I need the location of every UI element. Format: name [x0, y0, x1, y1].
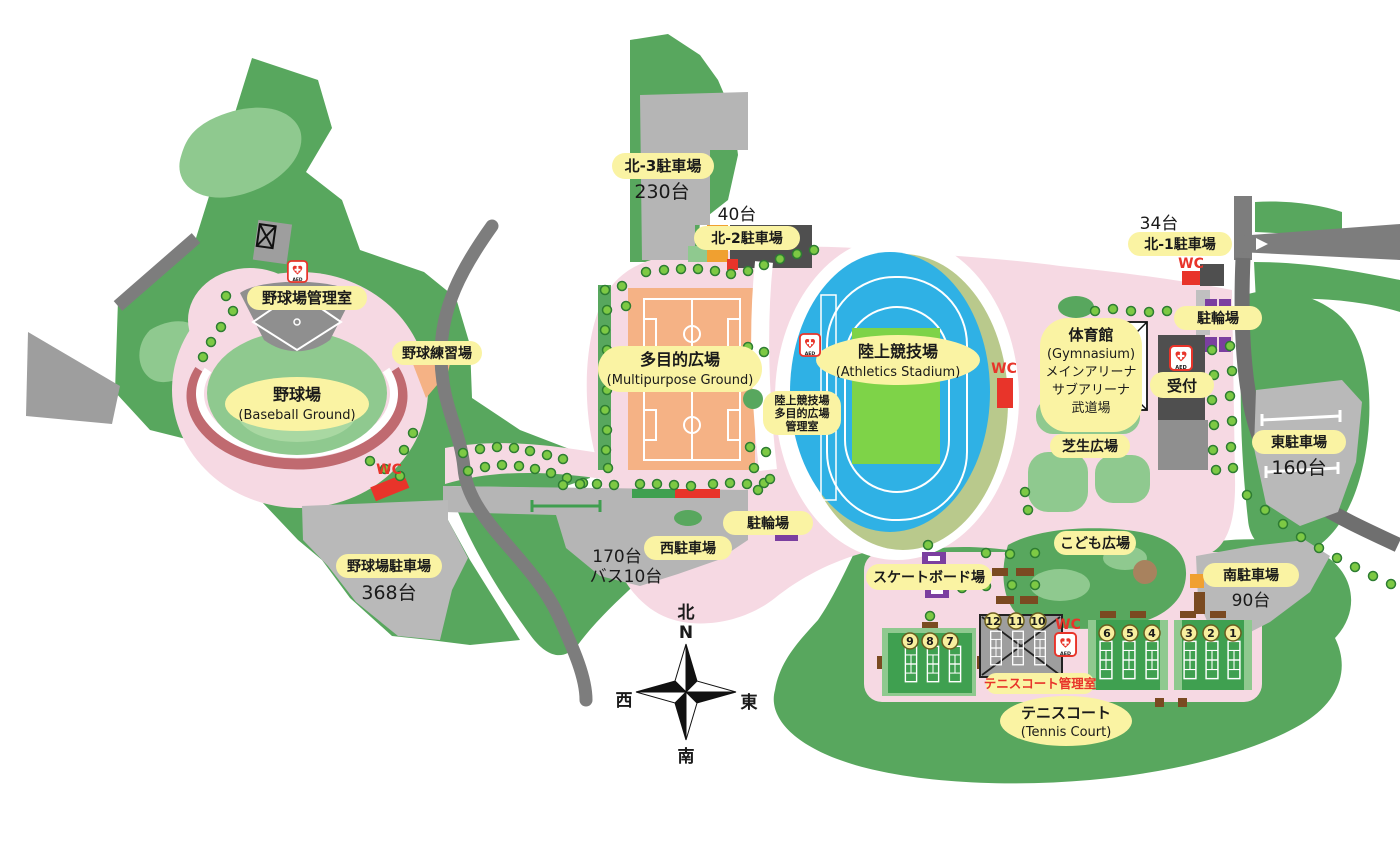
aed-icon [1170, 346, 1192, 371]
svg-text:(Multipurpose Ground): (Multipurpose Ground) [607, 373, 754, 388]
svg-text:北: 北 [678, 603, 695, 623]
svg-text:体育館: 体育館 [1068, 326, 1113, 344]
svg-text:1: 1 [1229, 627, 1237, 640]
label-bicycle-parking-center: 駐輪場 [723, 511, 813, 535]
svg-text:多目的広場: 多目的広場 [640, 350, 720, 369]
svg-text:西: 西 [616, 691, 633, 711]
svg-text:北-2駐車場: 北-2駐車場 [711, 230, 783, 247]
svg-text:駐輪場: 駐輪場 [747, 515, 789, 532]
wc-building-stadium [997, 378, 1013, 408]
label-bicycle-parking-east: 駐輪場 [1174, 306, 1262, 330]
svg-text:野球場: 野球場 [273, 385, 321, 404]
svg-text:バス10台: バス10台 [590, 567, 663, 587]
label-kids-plaza: こども広場 [1054, 531, 1136, 555]
svg-text:8: 8 [926, 635, 934, 648]
svg-text:野球場管理室: 野球場管理室 [262, 289, 352, 307]
label-skateboard: スケートボード場 [866, 564, 992, 590]
svg-text:北-1駐車場: 北-1駐車場 [1144, 236, 1216, 253]
svg-text:東駐車場: 東駐車場 [1271, 434, 1327, 451]
wc-label-baseball: WC [376, 462, 402, 478]
svg-text:スケートボード場: スケートボード場 [873, 569, 985, 586]
svg-text:160台: 160台 [1271, 457, 1326, 479]
svg-text:南駐車場: 南駐車場 [1223, 567, 1279, 584]
sandpit [1133, 560, 1157, 584]
svg-text:駐輪場: 駐輪場 [1197, 310, 1239, 327]
svg-text:4: 4 [1148, 627, 1156, 640]
svg-text:7: 7 [946, 635, 954, 648]
svg-text:多目的広場: 多目的広場 [775, 406, 830, 420]
wc-label-north1: WC [1178, 256, 1204, 272]
label-baseball-office: 野球場管理室 [247, 286, 367, 310]
aed-icon [800, 334, 820, 357]
label-gymnasium: 体育館 (Gymnasium) メインアリーナ サブアリーナ 武道場 [1040, 318, 1142, 432]
label-multipurpose-ground: 多目的広場 (Multipurpose Ground) [598, 346, 762, 392]
label-field-office: 陸上競技場 多目的広場 管理室 [763, 391, 841, 435]
svg-text:メインアリーナ: メインアリーナ [1045, 365, 1136, 380]
svg-text:(Tennis Court): (Tennis Court) [1021, 725, 1112, 740]
svg-text:南: 南 [678, 746, 695, 767]
label-baseball-ground: 野球場 (Baseball Ground) [225, 377, 369, 431]
svg-text:170台: 170台 [592, 547, 641, 567]
aed-icon [1055, 633, 1076, 657]
svg-text:テニスコート: テニスコート [1021, 704, 1111, 722]
label-tennis-court: テニスコート (Tennis Court) [1000, 696, 1132, 746]
svg-text:西駐車場: 西駐車場 [660, 540, 716, 557]
svg-text:N: N [679, 623, 693, 643]
label-reception: 受付 [1150, 372, 1214, 398]
label-practice-field: 野球練習場 [392, 341, 482, 365]
svg-text:芝生広場: 芝生広場 [1062, 438, 1118, 455]
sports-park-map: AED [0, 0, 1400, 854]
label-tennis-office: テニスコート管理室 [984, 673, 1097, 694]
svg-text:武道場: 武道場 [1071, 401, 1110, 416]
svg-text:5: 5 [1126, 627, 1134, 640]
svg-text:3: 3 [1185, 627, 1193, 640]
svg-text:368台: 368台 [361, 582, 416, 604]
svg-text:2: 2 [1207, 627, 1215, 640]
svg-text:34台: 34台 [1140, 214, 1179, 234]
svg-text:東: 東 [741, 692, 758, 713]
compass-rose: 北 N 西 東 南 [616, 603, 758, 767]
svg-text:9: 9 [906, 635, 914, 648]
baseball-office-building [253, 220, 292, 264]
svg-text:11: 11 [1008, 615, 1023, 628]
svg-text:230台: 230台 [634, 181, 689, 203]
svg-text:(Baseball Ground): (Baseball Ground) [238, 408, 355, 423]
svg-text:野球練習場: 野球練習場 [402, 345, 472, 362]
svg-text:(Gymnasium): (Gymnasium) [1047, 347, 1135, 362]
svg-text:陸上競技場: 陸上競技場 [775, 393, 830, 407]
map-canvas: AED [0, 0, 1400, 854]
svg-text:12: 12 [985, 615, 1000, 628]
svg-text:6: 6 [1103, 627, 1111, 640]
label-lawn-plaza: 芝生広場 [1050, 434, 1130, 458]
wc-label-tennis: WC [1055, 617, 1081, 633]
label-north1-parking: 34台 北-1駐車場 [1128, 214, 1232, 256]
svg-text:受付: 受付 [1167, 377, 1197, 395]
svg-text:野球場駐車場: 野球場駐車場 [347, 558, 431, 575]
svg-text:40台: 40台 [718, 205, 757, 225]
wc-label-stadium: WC [991, 361, 1017, 377]
aed-icon [288, 261, 307, 283]
svg-text:(Athletics Stadium): (Athletics Stadium) [836, 365, 961, 380]
svg-text:管理室: 管理室 [786, 419, 819, 433]
svg-text:北-3駐車場: 北-3駐車場 [625, 157, 702, 175]
svg-text:陸上競技場: 陸上競技場 [858, 342, 938, 361]
svg-text:サブアリーナ: サブアリーナ [1052, 382, 1130, 398]
svg-text:10: 10 [1030, 615, 1046, 628]
svg-text:テニスコート管理室: テニスコート管理室 [984, 676, 1097, 691]
svg-text:こども広場: こども広場 [1060, 535, 1130, 552]
svg-text:90台: 90台 [1232, 591, 1271, 611]
label-athletics-stadium: 陸上競技場 (Athletics Stadium) [816, 335, 980, 385]
